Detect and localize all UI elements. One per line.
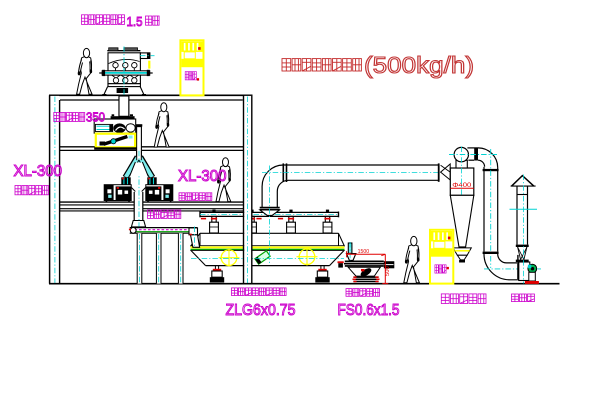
svg-text:1.5: 1.5 bbox=[127, 14, 143, 29]
svg-text:350: 350 bbox=[86, 110, 105, 124]
svg-text:FS0.6x1.5: FS0.6x1.5 bbox=[338, 302, 400, 319]
svg-text:1500: 1500 bbox=[358, 249, 370, 255]
svg-text:XL-300: XL-300 bbox=[14, 163, 63, 180]
svg-text:ZLG6x0.75: ZLG6x0.75 bbox=[226, 302, 296, 319]
svg-text:XL-300: XL-300 bbox=[178, 168, 227, 185]
svg-text:500: 500 bbox=[385, 266, 391, 276]
svg-text:(500kg/h): (500kg/h) bbox=[364, 52, 474, 78]
